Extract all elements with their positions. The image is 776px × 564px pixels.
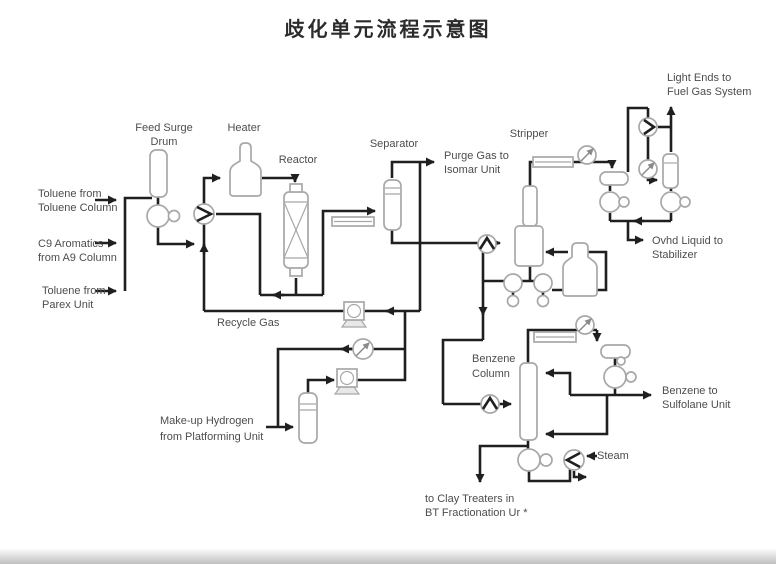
benzene-reboiler-loop (529, 469, 570, 481)
condensate-line (574, 471, 586, 477)
pfd-page: 歧化单元流程示意图 (0, 0, 776, 564)
benzene-pump-nub-icon (626, 372, 636, 382)
label-benzene-column: Benzene (472, 353, 515, 365)
feed-pump-nub-icon (169, 211, 180, 222)
label-makeup-hydrogen-2: from Platforming Unit (160, 431, 263, 443)
label-clay-treaters-2: BT Fractionation Ur * (425, 507, 528, 519)
makeup-hydrogen-drum-vessel (299, 393, 317, 443)
ovhd-liquid-line (628, 221, 643, 240)
bottoms-pump2-nub-icon (538, 296, 549, 307)
benzene-return-line (546, 395, 607, 434)
label-purge-gas: Purge Gas to (444, 150, 509, 162)
benzene-reboiler-pump-nub-icon (540, 454, 552, 466)
label-benzene-column-2: Column (472, 368, 510, 380)
purge-gas-line (392, 162, 434, 178)
label-toluene-parex: Toluene from (42, 285, 106, 297)
makeup-compressor-suction-line (308, 380, 334, 393)
pfd-diagram: Feed Surge Drum Heater Reactor Separator… (0, 0, 776, 564)
recycle-compressor-base (342, 320, 366, 327)
heater-outlet-line (262, 178, 295, 182)
label-ovhd-liquid: Ovhd Liquid to (652, 235, 723, 247)
benzene-reboiler-pump-icon (518, 449, 540, 471)
label-separator: Separator (370, 138, 419, 150)
ko-pump-nub-icon (680, 197, 690, 207)
label-purge-gas-2: Isomar Unit (444, 164, 500, 176)
reflux-pump-nub-icon (619, 197, 629, 207)
heater-furnace-icon (230, 143, 261, 196)
benzene-column-vessel (520, 363, 537, 440)
light-ends-vessel (663, 154, 678, 188)
feed-pump-discharge-line (158, 227, 194, 244)
reflux-pump-icon (600, 192, 620, 212)
label-light-ends: Light Ends to (667, 72, 731, 84)
benzene-reflux-line (546, 373, 570, 395)
scan-artifact-band (0, 548, 776, 564)
label-ovhd-liquid-2: Stabilizer (652, 249, 698, 261)
label-toluene-column-feed-2: Toluene Column (38, 202, 118, 214)
label-clay-treaters: to Clay Treaters in (425, 493, 514, 505)
benzene-reflux-drum-vessel (601, 345, 630, 358)
feed-pump-icon (147, 205, 169, 227)
label-heater: Heater (227, 122, 260, 134)
benzene-drum-boot-icon (617, 357, 625, 365)
label-c9-aromatics: C9 Aromatics (38, 238, 104, 250)
stripper-lower-section (515, 226, 543, 266)
label-feed-surge-drum: Feed Surge (135, 122, 192, 134)
effluent-exchanger-line (216, 214, 260, 295)
labels-layer: Feed Surge Drum Heater Reactor Separator… (38, 72, 751, 519)
label-toluene-column-feed: Toluene from (38, 188, 102, 200)
bottoms-pump2-icon (534, 274, 552, 292)
label-steam: Steam (597, 450, 629, 462)
label-feed-surge-drum-2: Drum (151, 136, 178, 148)
ko-pump-icon (661, 192, 681, 212)
label-benzene-sulfolane-2: Sulfolane Unit (662, 399, 731, 411)
label-makeup-hydrogen: Make-up Hydrogen (160, 415, 254, 427)
makeup-hydrogen-lines (266, 311, 405, 427)
feed-surge-drum-vessel (150, 150, 167, 197)
bottoms-pump1-nub-icon (508, 296, 519, 307)
label-stripper: Stripper (510, 128, 549, 140)
stripper-reflux-drum-vessel (600, 172, 628, 185)
label-recycle-gas: Recycle Gas (217, 317, 280, 329)
benzene-pump-icon (604, 366, 626, 388)
label-reactor: Reactor (279, 154, 318, 166)
makeup-compressor-base (335, 387, 359, 394)
stripper-upper-section (523, 186, 537, 226)
heater-inlet-line (204, 178, 220, 204)
label-benzene-sulfolane: Benzene to (662, 385, 718, 397)
label-c9-aromatics-2: from A9 Column (38, 252, 117, 264)
label-light-ends-2: Fuel Gas System (667, 86, 751, 98)
label-toluene-parex-2: Parex Unit (42, 299, 93, 311)
bottoms-pump1-icon (504, 274, 522, 292)
